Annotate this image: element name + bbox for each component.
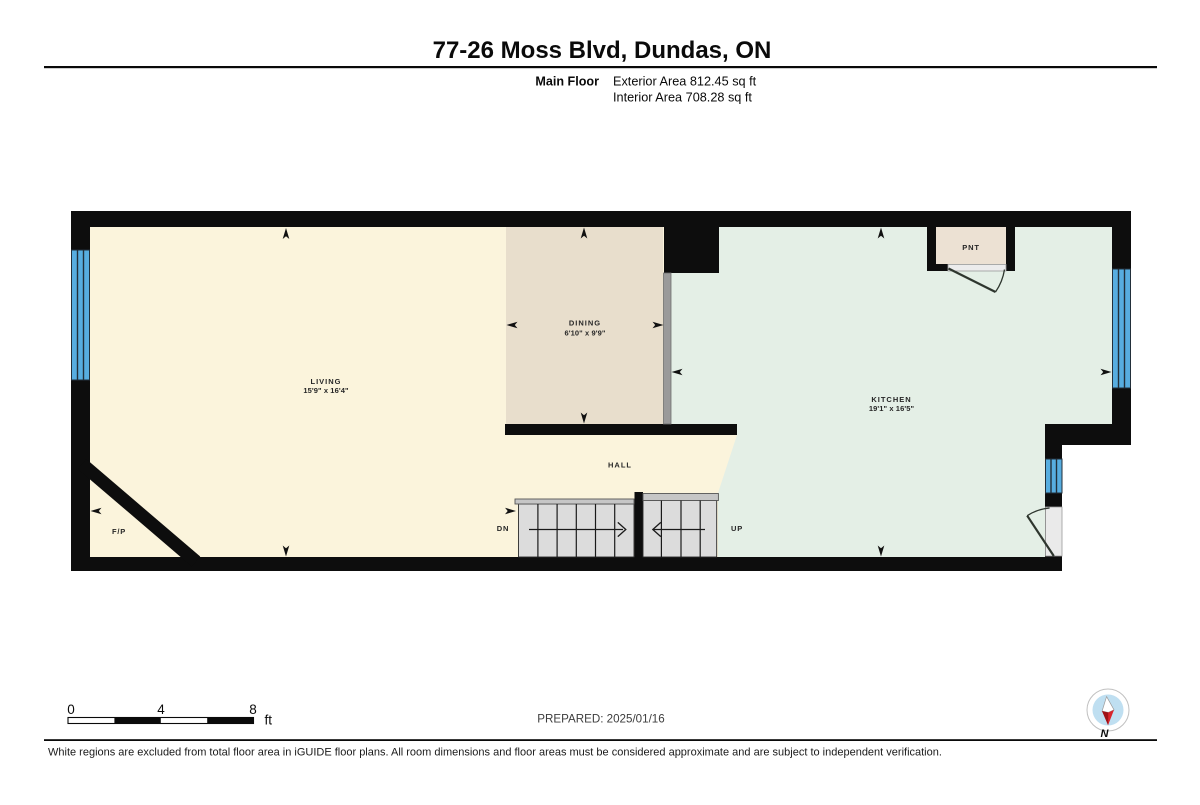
svg-text:LIVING: LIVING xyxy=(310,377,341,386)
svg-text:19'1" x 16'5": 19'1" x 16'5" xyxy=(869,404,915,413)
svg-text:N: N xyxy=(1101,728,1110,740)
svg-text:0: 0 xyxy=(67,702,75,717)
svg-text:Main Floor: Main Floor xyxy=(535,75,599,89)
svg-text:15'9" x 16'4": 15'9" x 16'4" xyxy=(303,386,349,395)
svg-text:6'10" x 9'9": 6'10" x 9'9" xyxy=(564,329,605,338)
svg-text:Interior Area 708.28 sq ft: Interior Area 708.28 sq ft xyxy=(613,91,752,105)
svg-text:Exterior Area 812.45 sq ft: Exterior Area 812.45 sq ft xyxy=(613,75,757,89)
svg-text:UP: UP xyxy=(731,524,743,533)
svg-text:KITCHEN: KITCHEN xyxy=(871,395,911,404)
svg-text:8: 8 xyxy=(249,702,257,717)
svg-text:DN: DN xyxy=(497,524,509,533)
svg-text:White regions are excluded fro: White regions are excluded from total fl… xyxy=(48,747,942,759)
svg-text:ft: ft xyxy=(265,713,273,728)
svg-text:HALL: HALL xyxy=(608,461,632,470)
svg-text:DINING: DINING xyxy=(569,319,601,328)
svg-text:77-26 Moss Blvd, Dundas, ON: 77-26 Moss Blvd, Dundas, ON xyxy=(433,37,772,64)
svg-text:F/P: F/P xyxy=(112,527,126,536)
svg-text:4: 4 xyxy=(157,702,165,717)
svg-text:PNT: PNT xyxy=(962,243,979,252)
svg-text:PREPARED: 2025/01/16: PREPARED: 2025/01/16 xyxy=(537,713,664,726)
